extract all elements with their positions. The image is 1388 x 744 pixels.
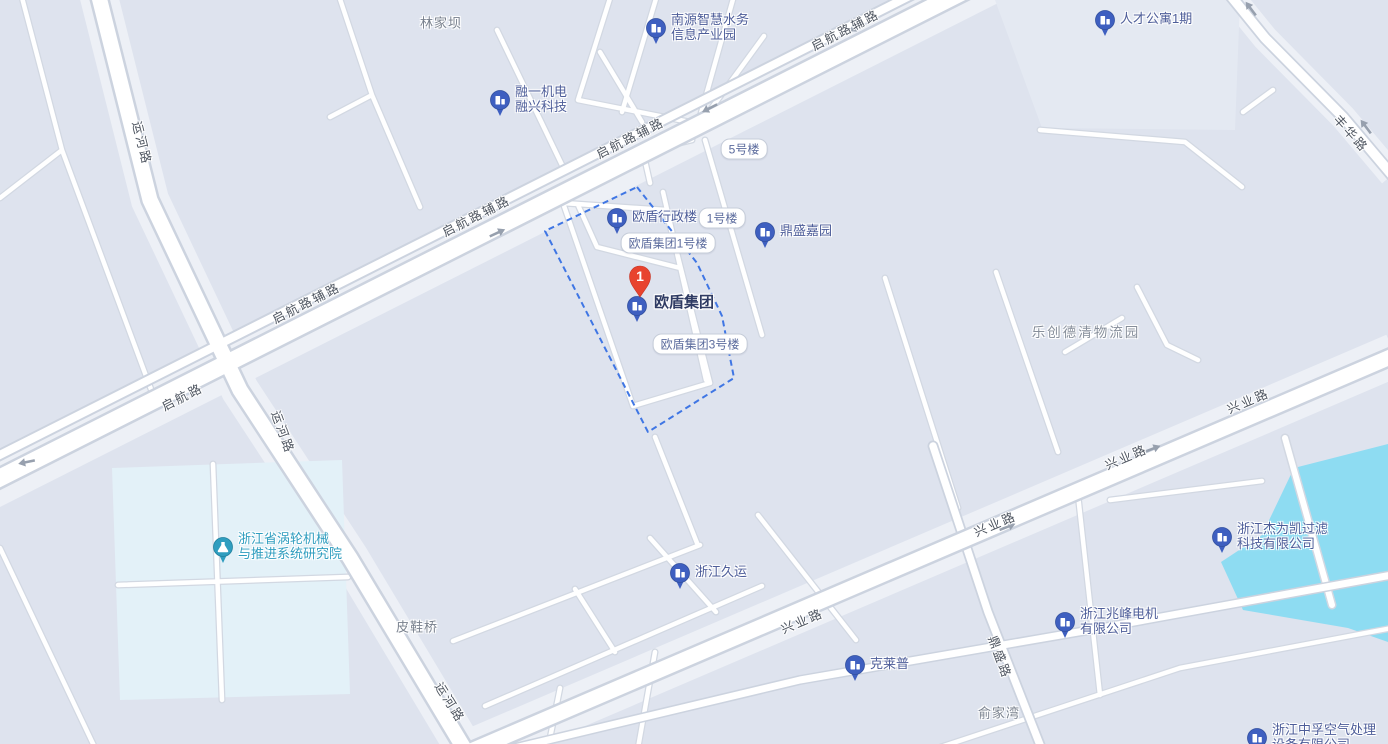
poi-label: 浙江兆峰电机 (1080, 606, 1158, 621)
map-canvas[interactable]: 启航路辅路 启航路辅路 启航路辅路 启航路辅路 启航路 运河路 运河路 运河路 … (0, 0, 1388, 744)
landmark-pin-icon (212, 537, 234, 564)
building-pin-icon (1211, 527, 1233, 554)
poi-label-selected: 欧盾集团 (654, 294, 714, 311)
poi-label: 科技有限公司 (1237, 536, 1328, 551)
building-pin-icon (1094, 10, 1116, 37)
building-pin-icon (489, 90, 511, 117)
building-pin-icon (669, 563, 691, 590)
poi-label: 有限公司 (1080, 621, 1158, 636)
poi-label: 克莱普 (870, 656, 909, 671)
poi-turbine-institute[interactable]: 浙江省涡轮机械与推进系统研究院 (212, 537, 234, 569)
map-base-layer (0, 0, 1388, 744)
poi-zhaofeng-motor[interactable]: 浙江兆峰电机有限公司 (1054, 612, 1076, 644)
poi-label: 信息产业园 (671, 27, 749, 42)
poi-rencai-apartment[interactable]: 人才公寓1期 (1094, 10, 1116, 42)
poi-jieweikai-filter[interactable]: 浙江杰为凯过滤科技有限公司 (1211, 527, 1233, 559)
poi-label: 浙江省涡轮机械 (238, 531, 342, 546)
poi-label: 浙江中孚空气处理 (1272, 722, 1376, 737)
building-bubble-oudun-no3[interactable]: 欧盾集团3号楼 (653, 334, 748, 355)
building-pin-icon (754, 222, 776, 249)
poi-rongyi-company[interactable]: 融一机电融兴科技 (489, 90, 511, 122)
poi-label: 鼎盛嘉园 (780, 223, 832, 238)
poi-label: 与推进系统研究院 (238, 546, 342, 561)
poi-label: 人才公寓1期 (1120, 11, 1192, 26)
marker-number: 1 (627, 268, 653, 284)
building-bubble-no1[interactable]: 1号楼 (699, 208, 746, 229)
poi-label: 浙江杰为凯过滤 (1237, 521, 1328, 536)
poi-oudun-admin-building[interactable]: 欧盾行政楼 (606, 208, 628, 240)
apartment-block (995, 0, 1240, 130)
poi-dingsheng-jiayuan[interactable]: 鼎盛嘉园 (754, 222, 776, 254)
building-bubble-oudun-no1[interactable]: 欧盾集团1号楼 (621, 233, 716, 254)
area-label-lechuangde-logistics: 乐创德清物流园 (1032, 321, 1141, 341)
poi-kelaipu[interactable]: 克莱普 (844, 655, 866, 687)
poi-label: 融一机电 (515, 84, 567, 99)
building-pin-icon (844, 655, 866, 682)
poi-zhejiang-jiuyun[interactable]: 浙江久运 (669, 563, 691, 595)
building-pin-icon (606, 208, 628, 235)
building-pin-icon (1054, 612, 1076, 639)
place-label-pixieqiao: 皮鞋桥 (396, 617, 438, 636)
poi-label: 浙江久运 (695, 564, 747, 579)
place-label-yujiawan: 俞家湾 (978, 703, 1020, 722)
poi-label: 融兴科技 (515, 99, 567, 114)
selected-result-marker[interactable]: 1 (627, 264, 653, 303)
place-label-linjiaba: 林家坝 (420, 13, 462, 32)
poi-zhongfu-air[interactable]: 浙江中孚空气处理设备有限公司 (1246, 728, 1268, 744)
building-bubble-no5[interactable]: 5号楼 (721, 139, 768, 160)
poi-label: 南源智慧水务 (671, 12, 749, 27)
building-pin-icon (645, 18, 667, 45)
poi-label: 欧盾行政楼 (632, 209, 697, 224)
building-pin-icon (1246, 728, 1268, 744)
poi-label: 设备有限公司 (1272, 737, 1376, 744)
poi-nanyuan-industrial-park[interactable]: 南源智慧水务信息产业园 (645, 18, 667, 50)
